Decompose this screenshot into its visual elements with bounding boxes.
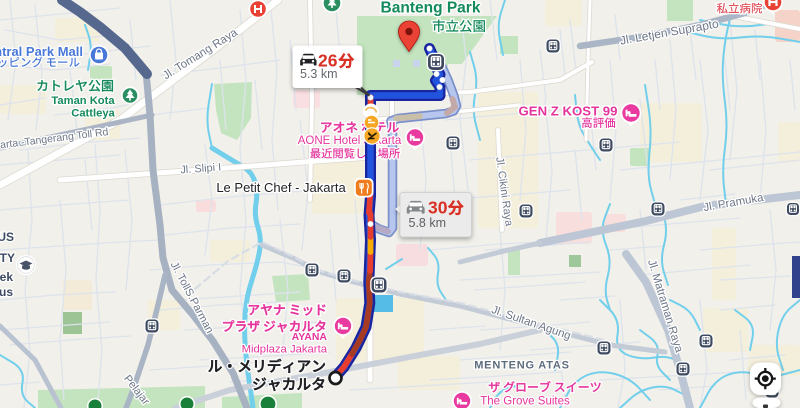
svg-text:AYANA: AYANA — [292, 331, 328, 343]
svg-text:ITY: ITY — [0, 251, 15, 265]
svg-text:5.8 km: 5.8 km — [409, 216, 447, 230]
svg-text:Banteng Park: Banteng Park — [381, 0, 481, 17]
svg-text:30: 30 — [428, 198, 448, 218]
svg-text:Taman Kota: Taman Kota — [51, 95, 115, 107]
svg-text:us: us — [0, 285, 13, 299]
svg-text:AONE Hotel Jakarta: AONE Hotel Jakarta — [298, 135, 402, 147]
svg-text:GEN Z KOST 99: GEN Z KOST 99 — [519, 104, 618, 119]
svg-text:Cattleya: Cattleya — [71, 108, 115, 120]
svg-text:The Grove Suites: The Grove Suites — [480, 396, 570, 408]
svg-text:MENTENG ATAS: MENTENG ATAS — [474, 360, 570, 372]
svg-text:5.3 km: 5.3 km — [300, 67, 338, 81]
svg-text:US: US — [0, 230, 14, 244]
svg-text:Le Petit Chef - Jakarta: Le Petit Chef - Jakarta — [216, 180, 346, 195]
svg-text:Midplaza Jakarta: Midplaza Jakarta — [242, 344, 328, 356]
svg-text:ek: ek — [0, 270, 13, 284]
